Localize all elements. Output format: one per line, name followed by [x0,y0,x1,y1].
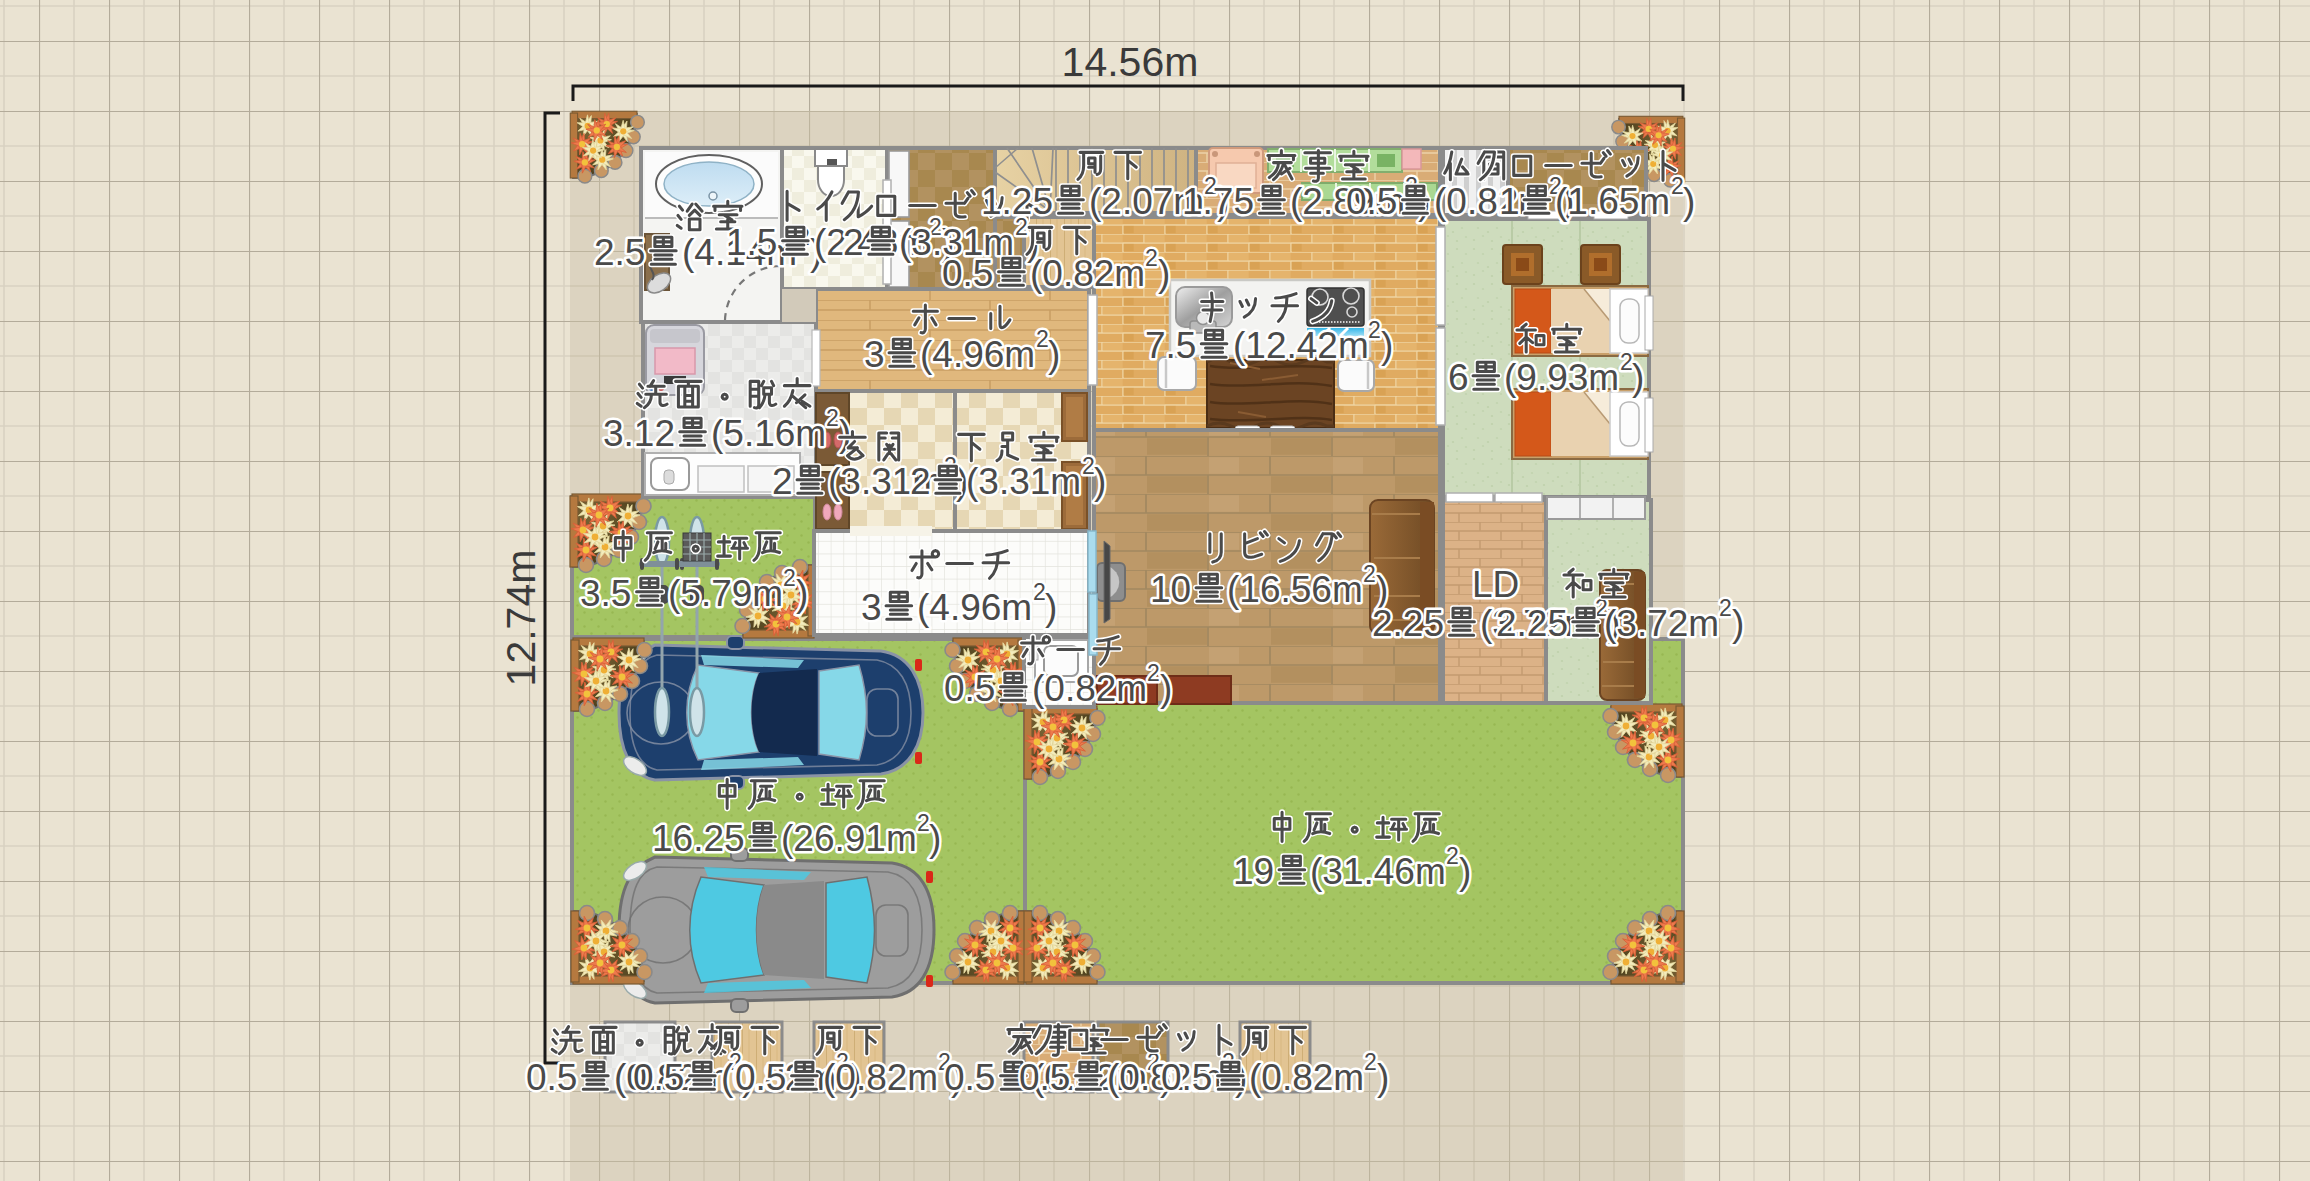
svg-text:(0.82m: (0.82m [1249,1057,1364,1098]
svg-text:16.25: 16.25 [652,818,745,859]
svg-text:2: 2 [1446,843,1459,869]
svg-text:0.5: 0.5 [633,1057,684,1098]
svg-text:(4.96m: (4.96m [917,587,1032,628]
svg-text:): ) [1045,587,1057,628]
svg-text:1.5: 1.5 [726,222,777,263]
svg-text:0.5: 0.5 [735,1057,786,1098]
svg-text:1.75: 1.75 [1182,181,1254,222]
svg-text:2: 2 [843,222,864,263]
svg-text:(9.93m: (9.93m [1504,357,1619,398]
svg-text:2: 2 [1036,326,1049,352]
svg-text:2: 2 [1368,317,1381,343]
svg-text:0.5: 0.5 [1346,181,1397,222]
svg-text:0.5: 0.5 [1161,1057,1212,1098]
svg-text:2: 2 [1147,660,1160,686]
svg-text:3.5: 3.5 [580,573,631,614]
svg-text:2: 2 [1719,595,1732,621]
svg-text:3: 3 [864,334,885,375]
svg-text:0.5: 0.5 [1019,1057,1070,1098]
svg-text:): ) [1377,1057,1389,1098]
svg-text:(5.79m: (5.79m [668,573,783,614]
svg-text:(4.96m: (4.96m [920,334,1035,375]
svg-text:2: 2 [826,405,839,431]
svg-text:): ) [1459,851,1471,892]
svg-text:): ) [796,573,808,614]
svg-text:0.5: 0.5 [944,1057,995,1098]
svg-text:(3.72m: (3.72m [1604,603,1719,644]
svg-text:10: 10 [1150,569,1191,610]
svg-text:(0.82m: (0.82m [1032,668,1147,709]
svg-text:2: 2 [1364,1049,1377,1075]
svg-text:2: 2 [1033,579,1046,605]
svg-text:(3.31m: (3.31m [966,461,1081,502]
svg-text:0.5: 0.5 [944,668,995,709]
svg-text:2: 2 [1620,349,1633,375]
svg-text:19: 19 [1233,851,1274,892]
svg-text:(26.91m: (26.91m [781,818,917,859]
svg-text:2: 2 [1145,245,1158,271]
svg-text:): ) [1381,325,1393,366]
svg-text:2: 2 [1671,173,1684,199]
svg-text:14.56m: 14.56m [1062,39,1199,85]
svg-text:2: 2 [783,565,796,591]
svg-text:0.5: 0.5 [942,253,993,294]
svg-text:(16.56m: (16.56m [1227,569,1363,610]
svg-text:6: 6 [1448,357,1469,398]
svg-text:0.5: 0.5 [526,1057,577,1098]
svg-text:12.74m: 12.74m [498,550,544,687]
svg-text:(1.65m: (1.65m [1555,181,1670,222]
svg-text:LD: LD [1472,564,1519,605]
svg-text:2: 2 [772,461,793,502]
svg-text:(31.46m: (31.46m [1310,851,1446,892]
svg-text:2.5: 2.5 [594,232,645,273]
svg-text:2: 2 [1363,561,1376,587]
svg-text:7.5: 7.5 [1145,325,1196,366]
svg-text:2.25: 2.25 [1372,603,1444,644]
svg-text:2: 2 [1082,453,1095,479]
svg-text:1: 1 [1499,181,1520,222]
svg-text:3.12: 3.12 [603,413,675,454]
svg-text:2: 2 [917,810,930,836]
svg-text:): ) [1048,334,1060,375]
svg-text:(5.16m: (5.16m [711,413,826,454]
svg-text:): ) [929,818,941,859]
svg-text:(0.82m: (0.82m [823,1057,938,1098]
svg-text:): ) [1094,461,1106,502]
svg-text:): ) [1160,668,1172,709]
svg-text:): ) [1732,603,1744,644]
svg-text:): ) [1158,253,1170,294]
svg-text:(0.82m: (0.82m [1030,253,1145,294]
svg-text:1.25: 1.25 [981,181,1053,222]
svg-text:2: 2 [910,461,931,502]
svg-text:(12.42m: (12.42m [1233,325,1369,366]
svg-text:): ) [1632,357,1644,398]
svg-text:3: 3 [861,587,882,628]
svg-text:2.25: 2.25 [1496,603,1568,644]
svg-text:): ) [1683,181,1695,222]
